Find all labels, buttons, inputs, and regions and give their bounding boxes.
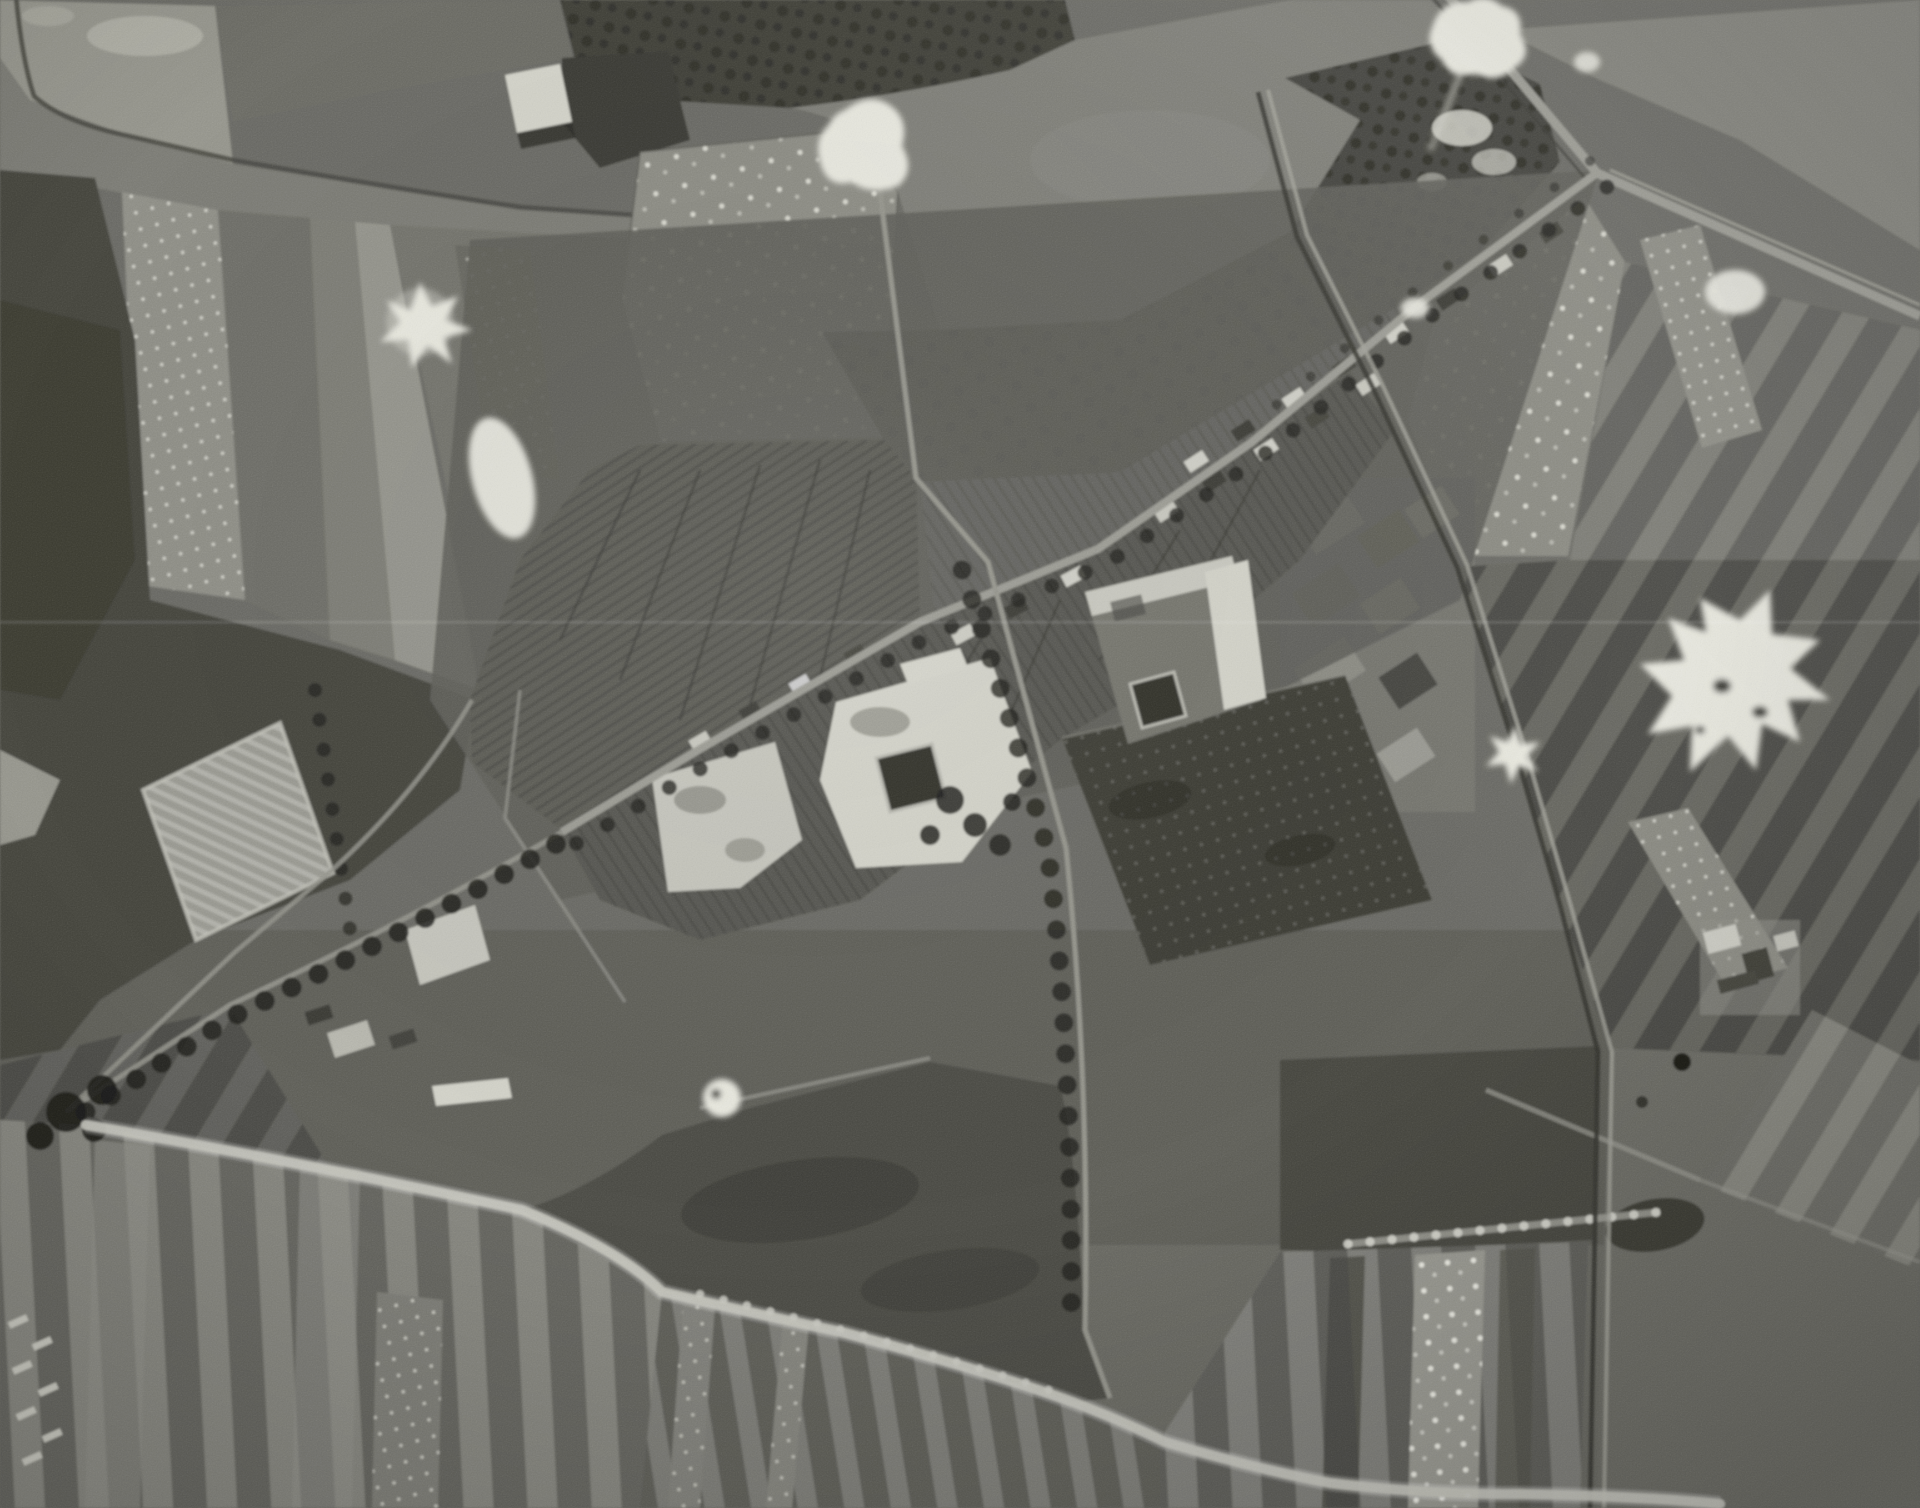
aerial-photo-canvas [0,0,1920,1508]
corner-light-leak [0,0,1920,1508]
aerial-photo [0,0,1920,1508]
